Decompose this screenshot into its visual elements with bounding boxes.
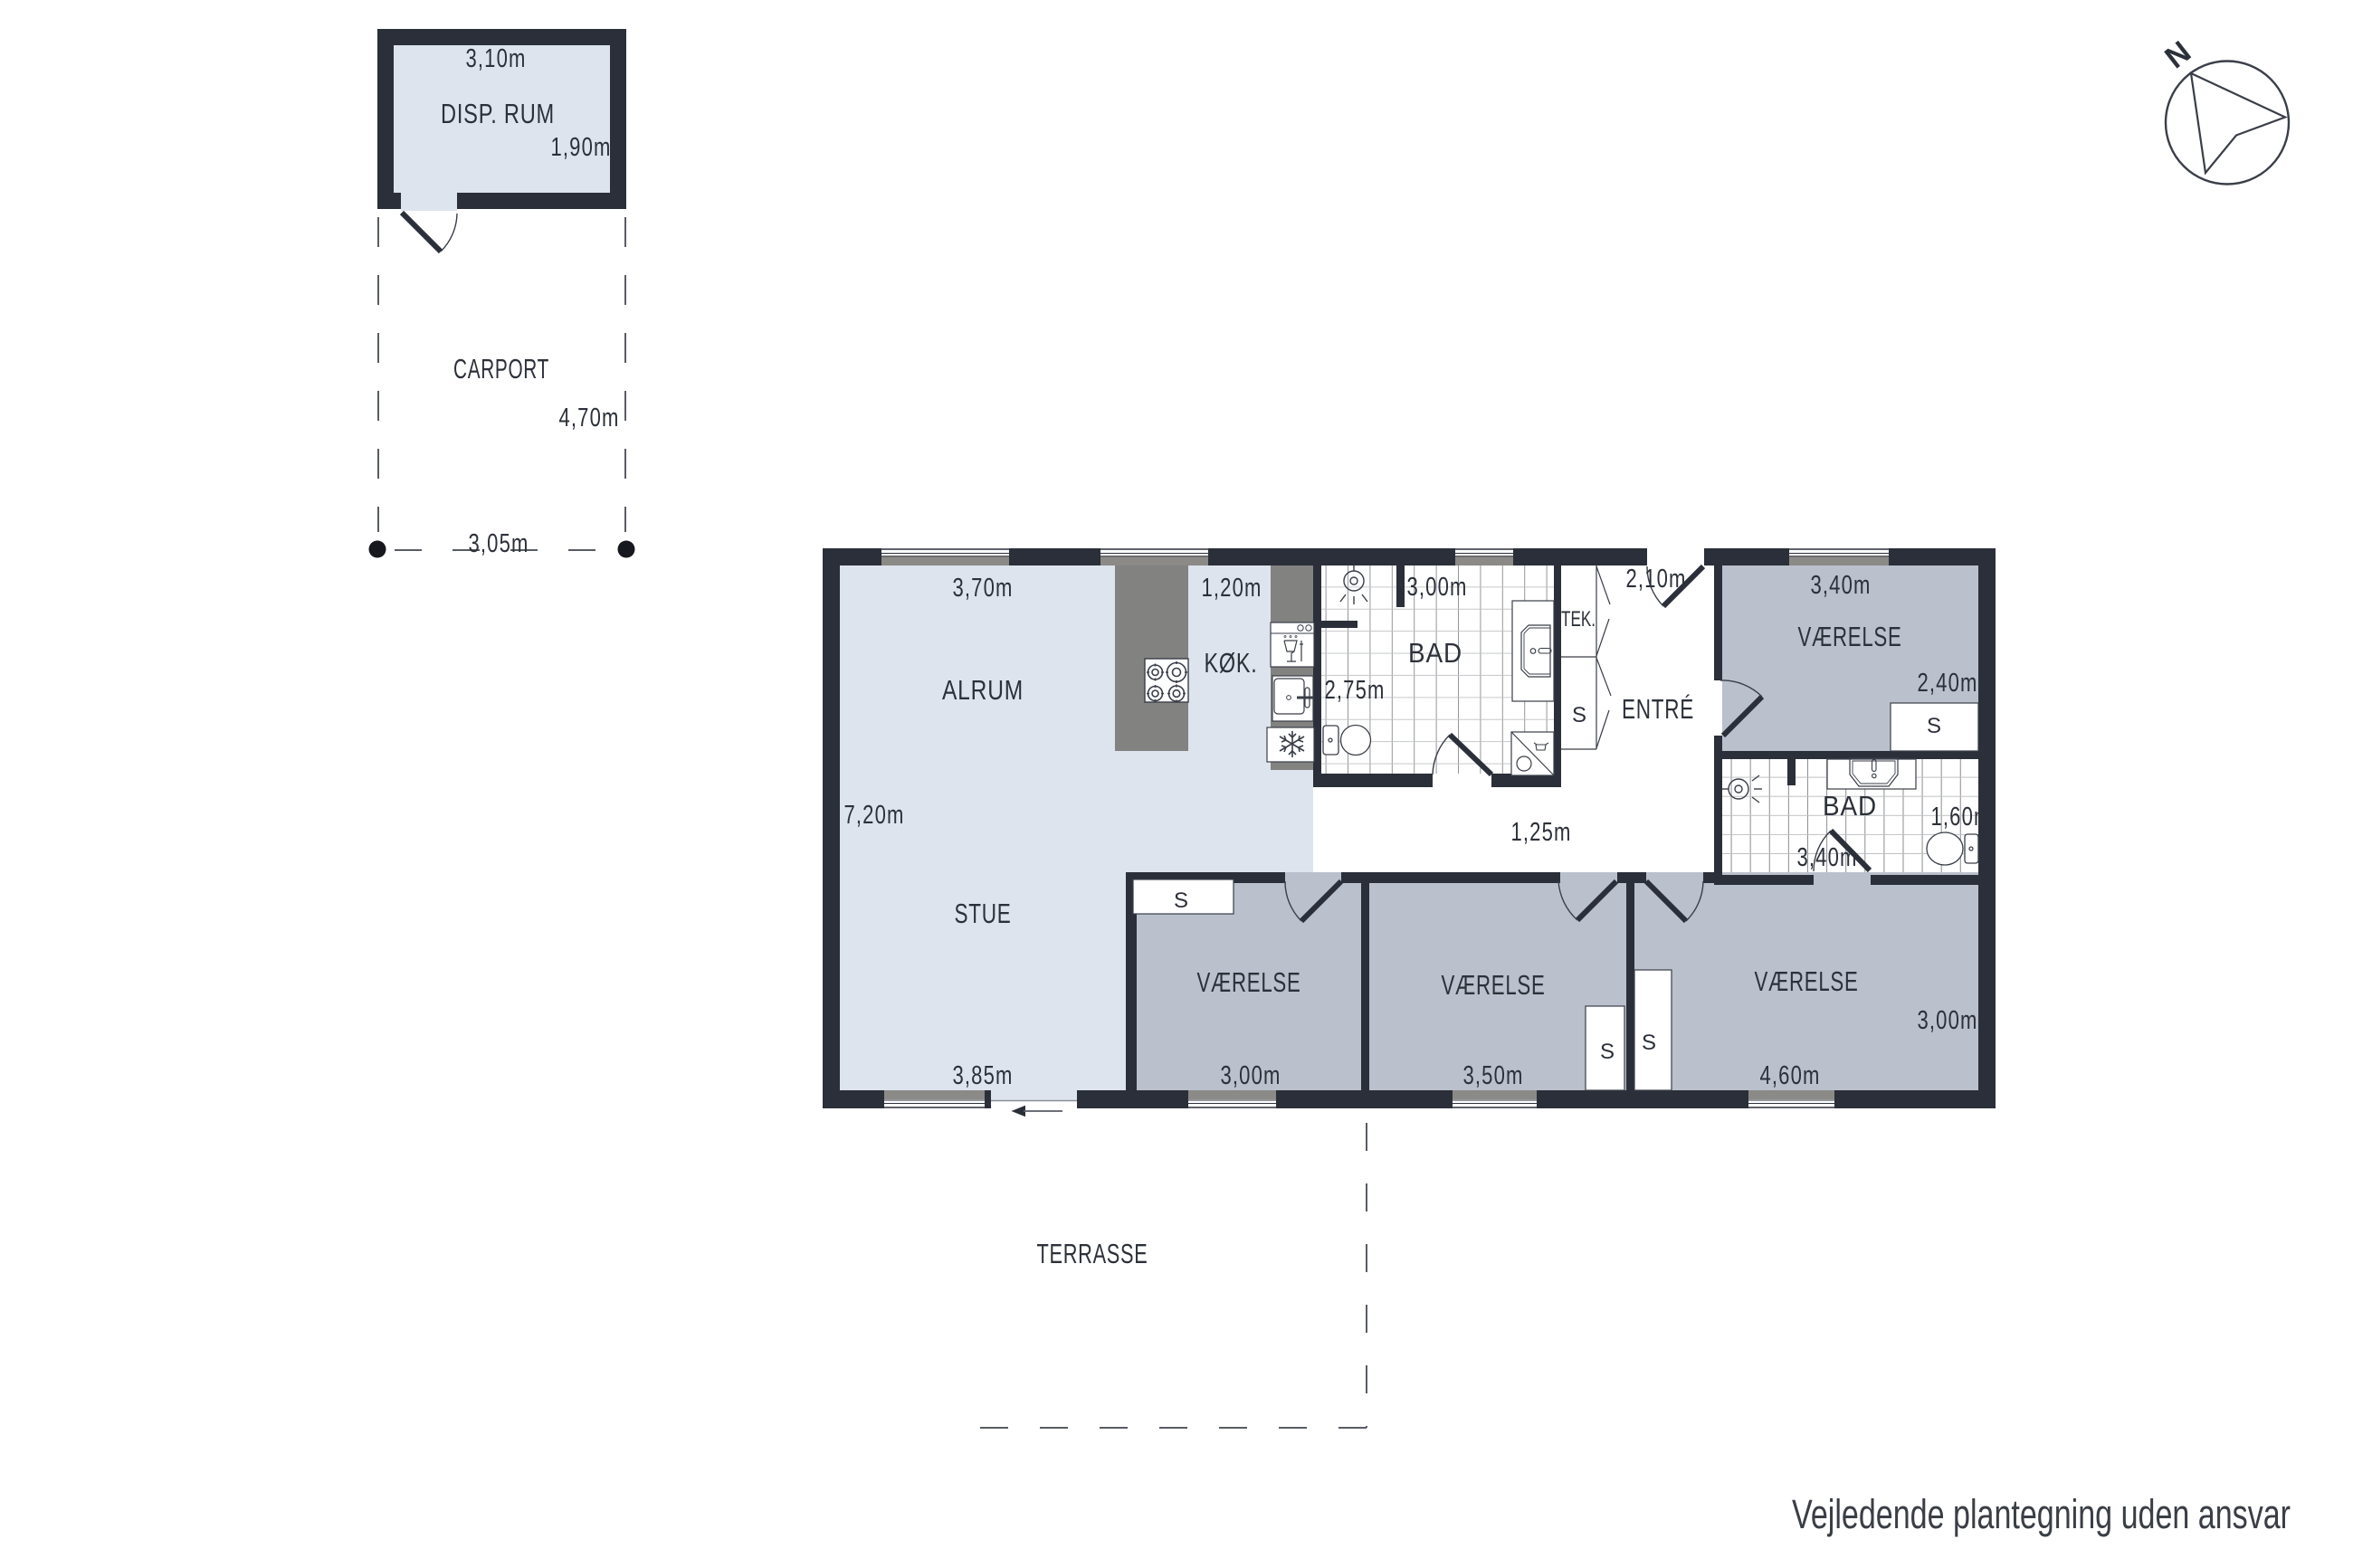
svg-text:3,00m: 3,00m — [1407, 573, 1468, 602]
svg-text:3,05m: 3,05m — [469, 529, 529, 558]
svg-text:2,40m: 2,40m — [1918, 669, 1978, 698]
svg-text:1,20m: 1,20m — [1202, 574, 1262, 603]
svg-text:3,00m: 3,00m — [1918, 1006, 1978, 1035]
svg-text:S: S — [1174, 889, 1188, 913]
svg-text:S: S — [1927, 714, 1941, 738]
svg-text:4,60m: 4,60m — [1760, 1061, 1821, 1090]
svg-text:TEK.: TEK. — [1561, 607, 1596, 632]
svg-text:3,70m: 3,70m — [953, 574, 1014, 603]
svg-text:2,10m: 2,10m — [1626, 565, 1687, 594]
svg-text:3,10m: 3,10m — [466, 44, 527, 73]
svg-text:3,40m: 3,40m — [1797, 843, 1858, 872]
svg-text:VÆRELSE: VÆRELSE — [1197, 966, 1301, 998]
svg-text:KØK.: KØK. — [1205, 647, 1258, 679]
svg-text:3,00m: 3,00m — [1221, 1061, 1281, 1090]
svg-text:S: S — [1572, 703, 1586, 727]
svg-text:VÆRELSE: VÆRELSE — [1798, 621, 1902, 652]
svg-text:1,60m: 1,60m — [1931, 803, 1992, 832]
svg-text:3,40m: 3,40m — [1811, 571, 1872, 600]
svg-text:BAD: BAD — [1823, 790, 1877, 822]
svg-text:7,20m: 7,20m — [844, 801, 905, 830]
svg-text:3,85m: 3,85m — [953, 1061, 1014, 1090]
svg-text:2,75m: 2,75m — [1325, 676, 1386, 705]
svg-text:VÆRELSE: VÆRELSE — [1755, 965, 1859, 997]
svg-text:ENTRÉ: ENTRÉ — [1622, 693, 1694, 725]
svg-text:ALRUM: ALRUM — [942, 674, 1024, 706]
svg-text:1,25m: 1,25m — [1511, 818, 1572, 847]
svg-text:S: S — [1600, 1040, 1615, 1064]
svg-text:BAD: BAD — [1408, 637, 1462, 669]
svg-text:DISP. RUM: DISP. RUM — [441, 98, 555, 129]
svg-text:STUE: STUE — [955, 898, 1012, 929]
svg-text:CARPORT: CARPORT — [453, 353, 549, 385]
svg-text:4,70m: 4,70m — [559, 404, 620, 432]
svg-text:1,90m: 1,90m — [551, 133, 612, 162]
svg-text:Vejledende plantegning uden an: Vejledende plantegning uden ansvar — [1792, 1491, 2291, 1537]
svg-text:3,50m: 3,50m — [1463, 1061, 1524, 1090]
svg-text:S: S — [1642, 1031, 1656, 1055]
svg-text:TERRASSE: TERRASSE — [1037, 1238, 1148, 1269]
svg-text:VÆRELSE: VÆRELSE — [1442, 969, 1546, 1001]
